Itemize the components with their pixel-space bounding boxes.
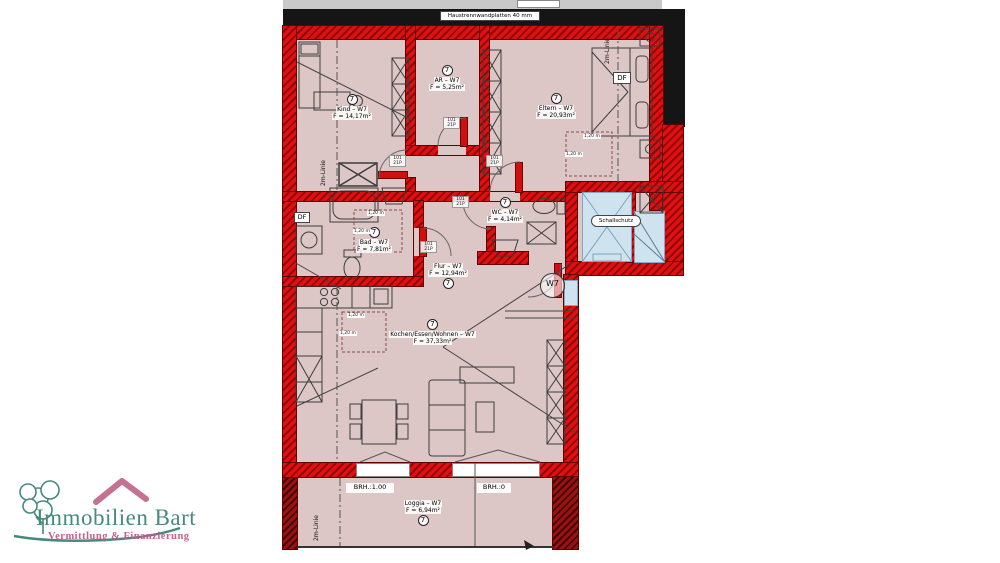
door-tag: 10121P: [389, 155, 406, 167]
room-area: F = 20,93m²: [536, 112, 576, 119]
room-name: Flur – W7: [433, 263, 463, 270]
room-name: Eltern – W7: [538, 105, 574, 112]
two-m-line-label-eltern: 2m-Linie: [605, 38, 611, 64]
room-label-kind: 7 Kind – W7 F = 14,17m²: [312, 93, 392, 120]
room-label-loggia: Loggia – W7 F = 6,94m² 7: [386, 500, 460, 527]
room-area: F = 37,33m²: [413, 338, 453, 345]
dim-120-label: 1,20 m: [353, 229, 371, 234]
door-tag: 10121P: [420, 241, 437, 253]
room-label-flur: Flur – W7 F = 12,94m² 7: [412, 263, 484, 290]
dim-120-label: 1,20 m: [565, 152, 583, 157]
two-m-line-label-loggia: 2m-Linie: [314, 515, 320, 541]
dim-120-label: 1,20 m: [583, 134, 601, 139]
logo-roof-icon: [96, 481, 146, 502]
elevator-marks: [582, 192, 632, 262]
two-m-line-label-kind: 2m-Linie: [321, 160, 327, 186]
room-name: AR – W7: [434, 77, 461, 84]
unit-badge: 7: [427, 319, 438, 330]
unit-badge: 7: [443, 278, 454, 289]
room-label-bad: 7 Bad – W7 F = 7,81m²: [336, 226, 412, 253]
wardrobe-kind: [392, 58, 409, 136]
door-tag: 10121P: [452, 196, 469, 208]
chimney-shaft: [339, 163, 377, 186]
room-name: Kochen/Essen/Wohnen – W7: [389, 331, 475, 338]
sofa-set: [429, 367, 514, 456]
room-name: Loggia – W7: [404, 500, 442, 507]
door-tag: 10121P: [443, 117, 460, 129]
logo-tagline: Vermittlung & Finanzierung: [48, 531, 190, 542]
brh-0-label: BRH.:0: [477, 483, 511, 493]
entrance-unit-badge: W7: [540, 273, 565, 298]
brh-100-label: BRH.:1.00: [346, 483, 394, 493]
unit-badge: 7: [418, 515, 429, 526]
room-name: WC – W7: [491, 209, 520, 216]
unit-badge: 7: [500, 197, 511, 208]
dim-120-label: 1,20 m: [367, 211, 385, 216]
df-label-bad: DF: [294, 212, 310, 223]
room-area: F = 7,81m²: [356, 246, 392, 253]
separator-label: Haustrennwandplatten 40 mm: [440, 11, 540, 21]
floor-plan-page: Haustrennwandplatten 40 mm 7 Kind – W7 F…: [0, 0, 1000, 563]
room-label-wc: 7 WC – W7 F = 4,14m²: [467, 196, 543, 223]
unit-badge: 7: [551, 93, 562, 104]
unit-badge: 7: [442, 65, 453, 76]
dining-set: [350, 400, 408, 444]
bed-eltern: [592, 28, 660, 158]
shaft-stairtop: [640, 186, 663, 213]
room-label-eltern: 7 Eltern – W7 F = 20,93m²: [516, 92, 596, 119]
dim-120-label: 1,20 m: [347, 313, 365, 318]
df-label-eltern: DF: [613, 72, 631, 84]
room-area: F = 4,14m²: [487, 216, 523, 223]
wardrobe-living: [547, 340, 565, 444]
logo-company-name: Immobilien Bart: [36, 505, 196, 531]
unit-badge: 7: [347, 94, 358, 105]
room-area: F = 6,94m²: [405, 507, 441, 514]
room-area: F = 12,94m²: [428, 270, 468, 277]
door-tag: 10121P: [486, 155, 503, 167]
room-area: F = 14,17m²: [332, 113, 372, 120]
schallschutz-label: Schallschutz: [591, 215, 641, 227]
room-label-wohnen: 7 Kochen/Essen/Wohnen – W7 F = 37,33m²: [365, 318, 500, 345]
dim-120-label: 1,20 m: [339, 331, 357, 336]
room-name: Kind – W7: [336, 106, 368, 113]
room-area: F = 5,25m²: [429, 84, 465, 91]
room-label-ar: 7 AR – W7 F = 5,25m²: [410, 64, 484, 91]
room-name: Bad – W7: [359, 239, 389, 246]
